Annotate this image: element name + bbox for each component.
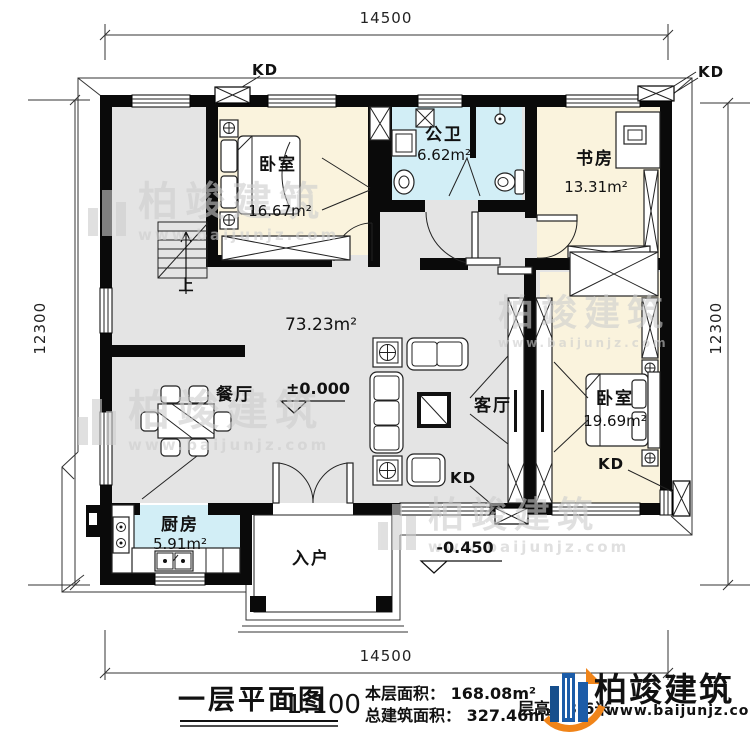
window	[660, 490, 672, 515]
chair	[189, 439, 208, 456]
window	[132, 95, 190, 107]
dimension-right: 12300	[708, 268, 725, 388]
plan-scale: 1:100	[286, 691, 361, 720]
sliding-panel-handle	[541, 390, 544, 432]
dimension-left: 12300	[32, 268, 49, 388]
room-label-living: 客厅	[463, 397, 523, 416]
stairs-up-label: 上	[176, 277, 196, 294]
room-label-bathroom: 公卫	[408, 126, 480, 145]
room-area-study: 13.31m²	[552, 179, 640, 196]
dimension-top: 14500	[296, 10, 476, 27]
kd-label: KD	[450, 470, 476, 487]
room-label-entry: 入户	[271, 550, 351, 569]
floor-plan-page: 柏竣建筑 www.baijunjz.com 柏竣建筑 www.baijunjz.…	[0, 0, 750, 741]
chair	[161, 439, 180, 456]
room-label-study: 书房	[555, 150, 635, 169]
flue-shaft	[370, 107, 390, 140]
window	[400, 503, 490, 515]
bookshelf	[644, 170, 658, 252]
kd-marker	[638, 72, 698, 101]
flue-opening	[89, 513, 97, 525]
chair	[161, 386, 180, 403]
window	[100, 288, 112, 333]
armchair	[407, 454, 445, 486]
chair	[214, 412, 231, 431]
tall-cabinet	[642, 298, 658, 358]
kd-label: KD	[698, 64, 724, 81]
pillow	[221, 140, 237, 172]
plant-table	[373, 456, 402, 485]
floor-area-text: 本层面积： 168.08m²	[365, 685, 536, 703]
dimension-bottom: 14500	[296, 648, 476, 665]
room-label-bedroom2: 卧室	[575, 390, 655, 409]
kd-label: KD	[598, 456, 624, 473]
floor-plan-drawing	[0, 0, 750, 741]
room-label-dining: 餐厅	[205, 386, 265, 405]
coffee-table	[417, 392, 451, 428]
window	[566, 95, 640, 107]
window	[268, 95, 336, 107]
elevation-porch-label: -0.450	[425, 539, 505, 557]
porch-column	[250, 596, 266, 612]
room-label-bedroom1: 卧室	[238, 156, 318, 175]
wardrobe	[222, 236, 350, 260]
window	[100, 412, 112, 485]
headboard	[648, 372, 660, 448]
kd-label: KD	[252, 62, 278, 79]
window	[155, 573, 205, 585]
pillow	[221, 176, 237, 208]
window	[552, 503, 640, 515]
room-area-bathroom: 6.62m²	[404, 147, 484, 164]
room-label-kitchen: 厨房	[146, 516, 214, 535]
plant-table	[373, 338, 402, 367]
title-underline	[180, 721, 338, 726]
elevation-zero-label: ±0.000	[282, 380, 354, 398]
toilet-tank	[515, 170, 524, 194]
brand-url: www.baijunjz.com	[606, 704, 750, 719]
sink	[155, 551, 193, 571]
round-basin	[394, 170, 414, 194]
room-area-bedroom1: 16.67m²	[238, 203, 322, 220]
elevation-porch-symbol	[421, 561, 502, 573]
open-area-value: 73.23m²	[276, 316, 366, 335]
chair	[141, 412, 158, 431]
wardrobe	[570, 252, 658, 296]
computer-monitor	[624, 126, 646, 144]
total-area-text: 总建筑面积： 327.46m²	[365, 707, 552, 725]
window	[418, 95, 462, 107]
porch-column	[376, 596, 392, 612]
room-area-bedroom2: 19.69m²	[568, 413, 662, 430]
room-area-kitchen: 5.91m²	[146, 536, 214, 553]
sofa-two-seat	[407, 338, 468, 370]
sofa-three-seat	[370, 372, 403, 453]
